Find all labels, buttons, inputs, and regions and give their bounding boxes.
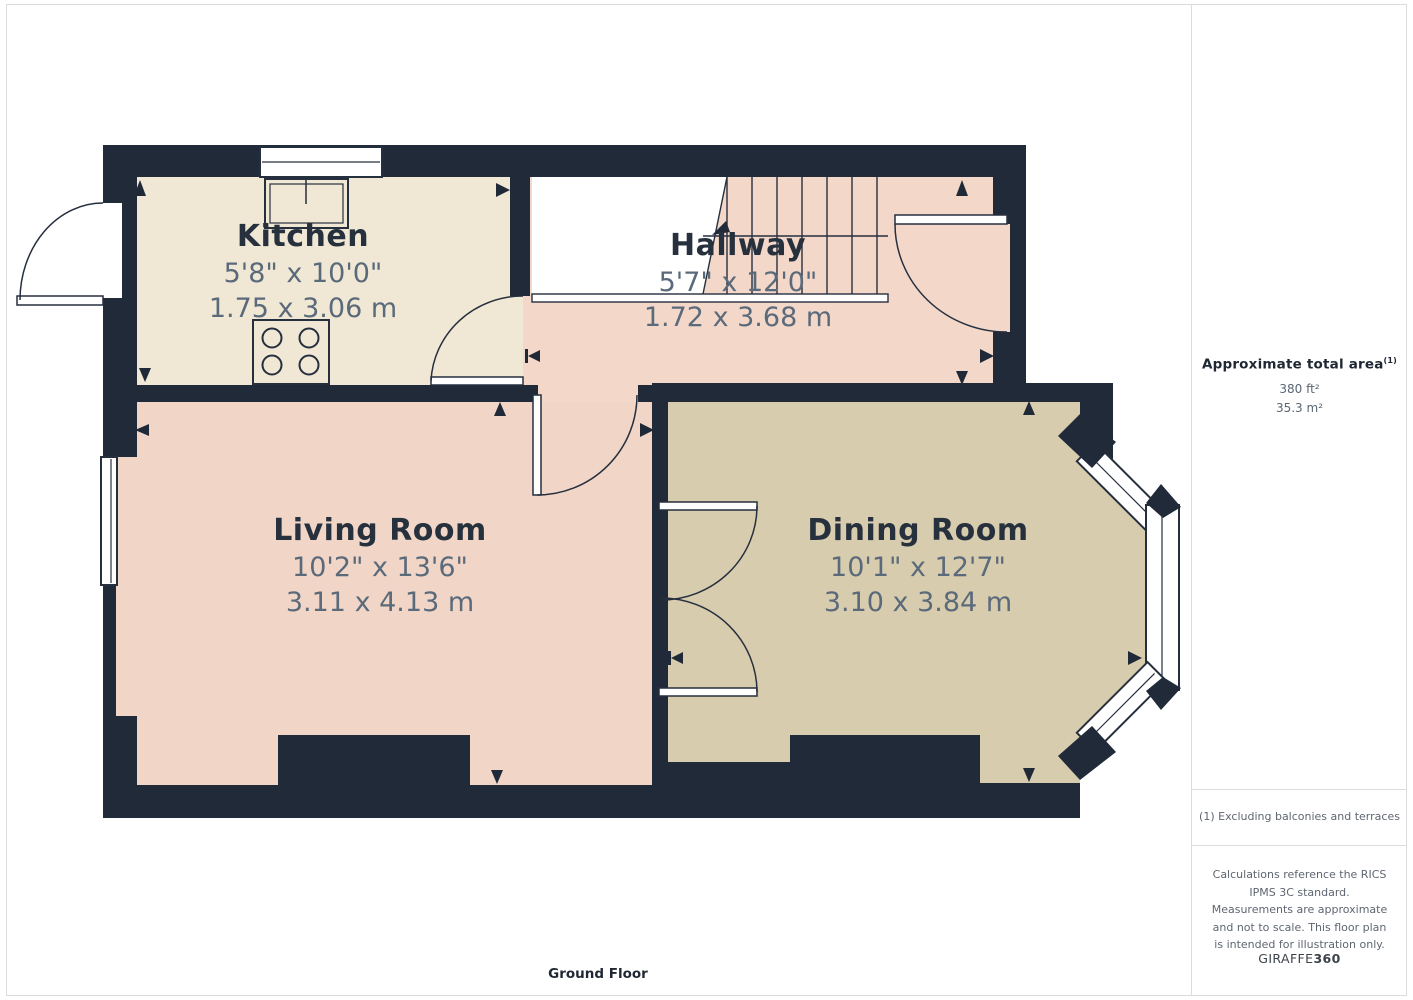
kitchen-door-opening [101, 203, 122, 298]
brand-suffix: 360 [1313, 951, 1340, 966]
kitchen-label: Kitchen 5'8" x 10'0" 1.75 x 3.06 m [209, 218, 397, 326]
living-room-dim-imperial: 10'2" x 13'6" [273, 550, 487, 585]
dining-room-label: Dining Room 10'1" x 12'7" 3.10 x 3.84 m [807, 512, 1028, 620]
info-sidebar: Approximate total area(1) 380 ft² 35.3 m… [1191, 4, 1407, 995]
total-area-title-text: Approximate total area [1202, 357, 1384, 373]
total-area-metric: 35.3 m² [1192, 401, 1407, 415]
sidebar-divider-bottom [1192, 845, 1407, 846]
hallway-dim-metric: 1.72 x 3.68 m [644, 300, 832, 335]
living-room-name: Living Room [273, 512, 487, 550]
total-area-block: Approximate total area(1) 380 ft² 35.3 m… [1192, 356, 1407, 415]
living-window-recess [116, 457, 137, 716]
total-area-title: Approximate total area(1) [1192, 356, 1407, 373]
front-door-recess [993, 224, 1010, 332]
double-door-leaf-bottom [659, 688, 757, 696]
kitchen-exterior-door-leaf [17, 296, 103, 305]
brand-name: GIRAFFE [1258, 951, 1313, 966]
double-door-leaf-top [659, 502, 757, 510]
front-door-leaf [895, 215, 1007, 224]
living-room-label: Living Room 10'2" x 13'6" 3.11 x 4.13 m [273, 512, 487, 620]
hallway-name: Hallway [644, 227, 832, 265]
hallway-label: Hallway 5'7" x 12'0" 1.72 x 3.68 m [644, 227, 832, 335]
total-area-imperial: 380 ft² [1192, 382, 1407, 396]
kitchen-dim-imperial: 5'8" x 10'0" [209, 256, 397, 291]
disclaimer-text: Calculations reference the RICS IPMS 3C … [1209, 866, 1390, 954]
living-door-leaf [533, 395, 541, 495]
brand-logo: GIRAFFE360 [1192, 951, 1407, 966]
kitchen-name: Kitchen [209, 218, 397, 256]
living-room-dim-metric: 3.11 x 4.13 m [273, 585, 487, 620]
area-footnote: (1) Excluding balconies and terraces [1192, 810, 1407, 823]
hallway-doorway-gap [538, 385, 638, 402]
total-area-superscript: (1) [1384, 356, 1397, 365]
dining-alcove [668, 735, 790, 762]
kitchen-door-leaf [431, 377, 523, 385]
dining-room-dim-metric: 3.10 x 3.84 m [807, 585, 1028, 620]
hallway-dim-imperial: 5'7" x 12'0" [644, 265, 832, 300]
floorplan-page: Kitchen 5'8" x 10'0" 1.75 x 3.06 m Hallw… [0, 0, 1413, 1000]
kitchen-exterior-door-arc [20, 203, 103, 300]
kitchen-dim-metric: 1.75 x 3.06 m [209, 291, 397, 326]
sidebar-divider-top [1192, 789, 1407, 790]
dining-room-name: Dining Room [807, 512, 1028, 550]
living-window [101, 457, 117, 585]
dining-room-dim-imperial: 10'1" x 12'7" [807, 550, 1028, 585]
chimney-breast [278, 735, 470, 785]
floor-title: Ground Floor [528, 966, 668, 982]
